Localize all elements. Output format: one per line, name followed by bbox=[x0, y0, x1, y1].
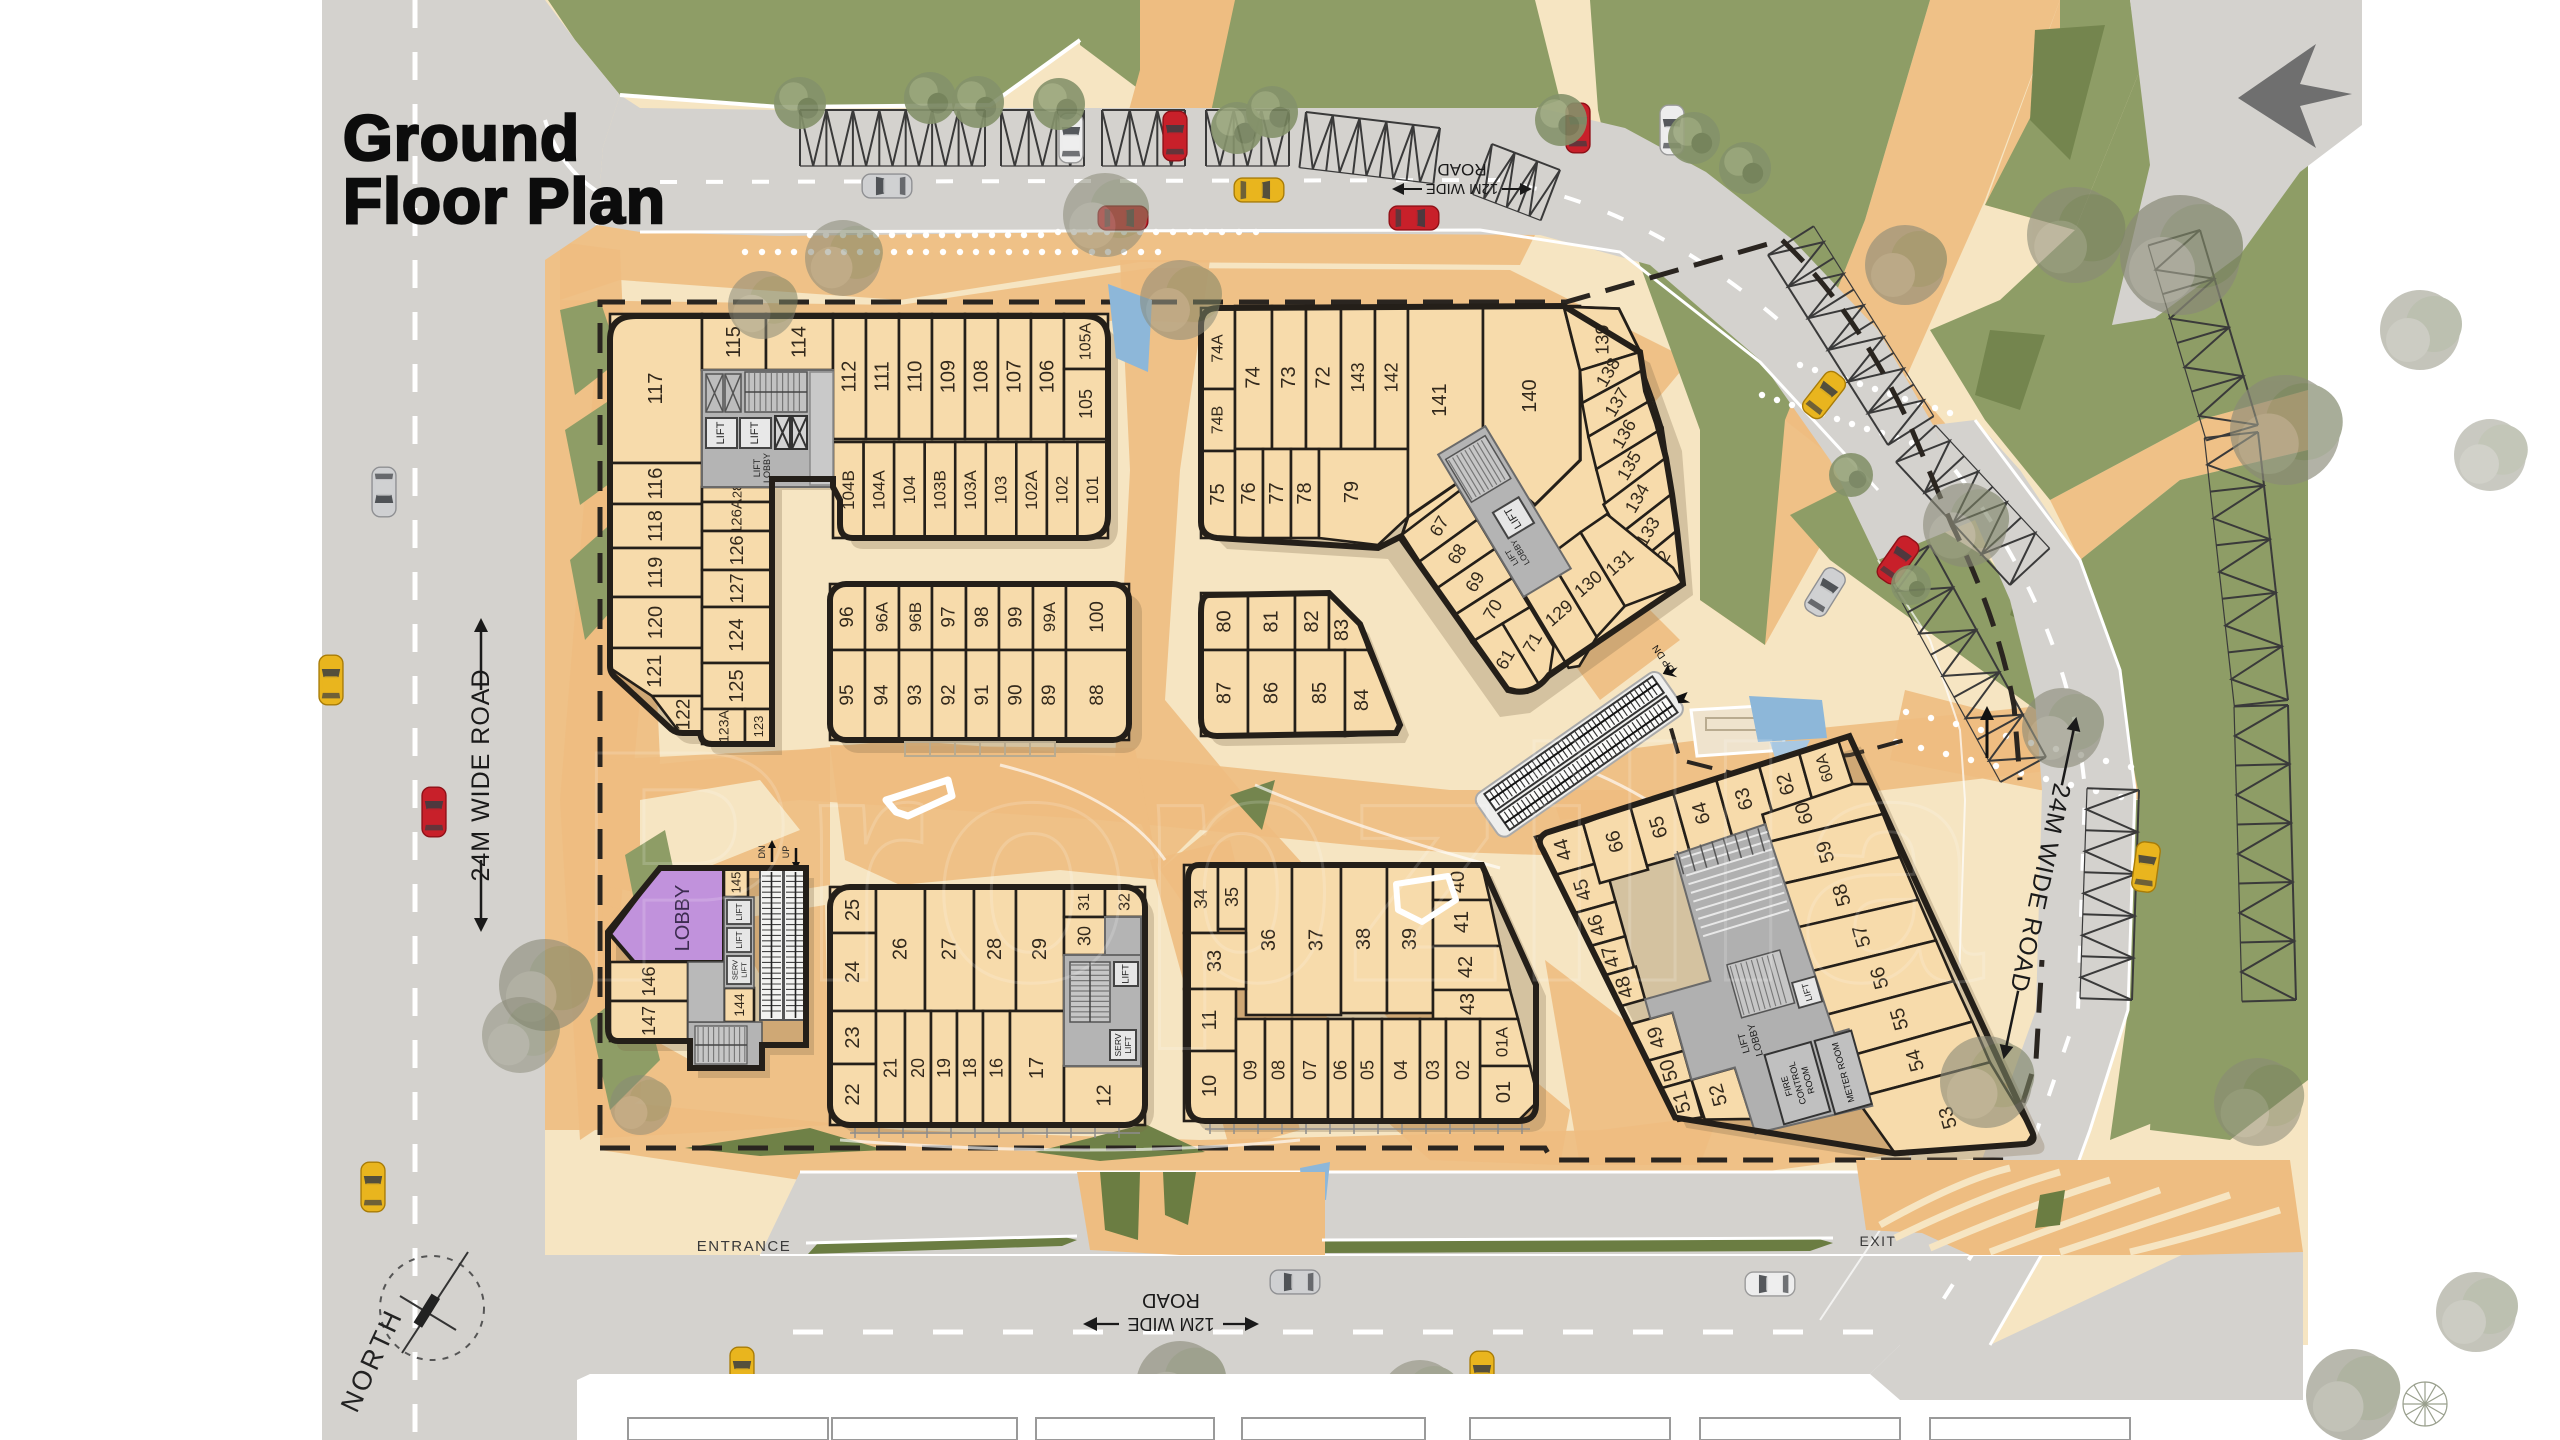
svg-text:103B: 103B bbox=[930, 470, 949, 510]
svg-text:103: 103 bbox=[992, 476, 1011, 504]
svg-text:126A: 126A bbox=[729, 499, 746, 534]
svg-text:03: 03 bbox=[1423, 1060, 1443, 1080]
svg-text:74A: 74A bbox=[1210, 334, 1227, 363]
svg-text:79: 79 bbox=[1341, 481, 1363, 503]
svg-text:126: 126 bbox=[727, 535, 747, 565]
svg-text:74B: 74B bbox=[1210, 406, 1227, 434]
svg-text:124: 124 bbox=[726, 618, 748, 651]
svg-text:72: 72 bbox=[1313, 366, 1335, 388]
svg-text:102A: 102A bbox=[1022, 469, 1041, 509]
svg-text:101: 101 bbox=[1083, 476, 1102, 504]
svg-text:73: 73 bbox=[1278, 366, 1300, 388]
svg-text:22: 22 bbox=[842, 1083, 864, 1105]
svg-text:24M WIDE ROAD: 24M WIDE ROAD bbox=[467, 668, 495, 881]
svg-text:12M WIDE: 12M WIDE bbox=[1426, 180, 1499, 197]
svg-text:74: 74 bbox=[1243, 366, 1265, 388]
svg-text:106: 106 bbox=[1037, 360, 1059, 393]
svg-text:01: 01 bbox=[1493, 1081, 1515, 1103]
svg-text:102: 102 bbox=[1053, 476, 1072, 504]
svg-text:10: 10 bbox=[1199, 1075, 1221, 1097]
svg-text:ROAD: ROAD bbox=[1437, 160, 1486, 179]
svg-text:120: 120 bbox=[645, 606, 667, 639]
svg-text:04: 04 bbox=[1391, 1060, 1411, 1080]
svg-text:83: 83 bbox=[1331, 619, 1353, 641]
svg-text:117: 117 bbox=[645, 373, 667, 405]
svg-text:17: 17 bbox=[1026, 1057, 1048, 1079]
svg-text:06: 06 bbox=[1331, 1060, 1351, 1080]
svg-text:104A: 104A bbox=[869, 469, 888, 509]
svg-text:98: 98 bbox=[972, 606, 993, 627]
svg-text:96: 96 bbox=[837, 606, 858, 627]
svg-text:81: 81 bbox=[1261, 610, 1283, 632]
svg-text:80: 80 bbox=[1214, 610, 1236, 632]
svg-text:82: 82 bbox=[1301, 610, 1323, 632]
svg-text:12M WIDE: 12M WIDE bbox=[1127, 1314, 1214, 1334]
svg-text:Propzilla: Propzilla bbox=[574, 681, 1985, 1052]
svg-text:118: 118 bbox=[645, 510, 667, 542]
svg-text:103A: 103A bbox=[961, 469, 980, 509]
svg-text:143: 143 bbox=[1348, 362, 1368, 392]
svg-text:08: 08 bbox=[1269, 1060, 1289, 1080]
svg-text:127: 127 bbox=[727, 573, 747, 603]
svg-text:96A: 96A bbox=[873, 601, 892, 632]
svg-text:141: 141 bbox=[1429, 383, 1451, 416]
svg-text:12: 12 bbox=[1094, 1084, 1116, 1106]
svg-text:ENTRANCE: ENTRANCE bbox=[697, 1238, 792, 1255]
svg-text:119: 119 bbox=[645, 557, 667, 589]
svg-text:18: 18 bbox=[960, 1058, 980, 1078]
svg-text:105: 105 bbox=[1076, 389, 1096, 419]
svg-text:ROAD: ROAD bbox=[1142, 1289, 1200, 1311]
svg-text:109: 109 bbox=[938, 360, 960, 393]
svg-text:77: 77 bbox=[1266, 482, 1288, 504]
svg-text:02: 02 bbox=[1453, 1060, 1473, 1080]
svg-text:114: 114 bbox=[789, 326, 811, 358]
svg-text:20: 20 bbox=[908, 1058, 928, 1078]
svg-text:LIFT: LIFT bbox=[752, 458, 762, 477]
svg-text:19: 19 bbox=[934, 1058, 954, 1078]
svg-text:111: 111 bbox=[872, 361, 894, 391]
svg-text:116: 116 bbox=[645, 468, 667, 500]
svg-text:LIFT: LIFT bbox=[749, 421, 761, 444]
svg-text:96B: 96B bbox=[906, 602, 925, 632]
svg-text:97: 97 bbox=[939, 606, 960, 627]
svg-text:112: 112 bbox=[839, 361, 861, 393]
svg-text:16: 16 bbox=[987, 1058, 1007, 1078]
svg-text:110: 110 bbox=[905, 361, 927, 393]
svg-text:78: 78 bbox=[1294, 482, 1316, 504]
svg-text:09: 09 bbox=[1241, 1060, 1261, 1080]
svg-text:07: 07 bbox=[1300, 1060, 1320, 1080]
svg-text:Floor Plan: Floor Plan bbox=[343, 165, 666, 237]
svg-text:EXIT: EXIT bbox=[1859, 1233, 1896, 1249]
svg-text:99: 99 bbox=[1006, 606, 1027, 627]
svg-text:LIFT: LIFT bbox=[715, 421, 727, 444]
svg-text:99A: 99A bbox=[1040, 601, 1059, 632]
svg-text:140: 140 bbox=[1519, 379, 1541, 412]
svg-text:104: 104 bbox=[900, 476, 919, 504]
svg-text:107: 107 bbox=[1004, 360, 1026, 393]
svg-text:105A: 105A bbox=[1078, 322, 1095, 360]
svg-text:76: 76 bbox=[1238, 482, 1260, 504]
svg-text:Ground: Ground bbox=[343, 102, 580, 174]
svg-text:142: 142 bbox=[1382, 362, 1402, 392]
svg-text:21: 21 bbox=[881, 1058, 901, 1078]
svg-text:100: 100 bbox=[1087, 601, 1108, 633]
svg-text:108: 108 bbox=[971, 360, 993, 393]
svg-text:75: 75 bbox=[1207, 483, 1229, 505]
svg-text:05: 05 bbox=[1358, 1060, 1378, 1080]
